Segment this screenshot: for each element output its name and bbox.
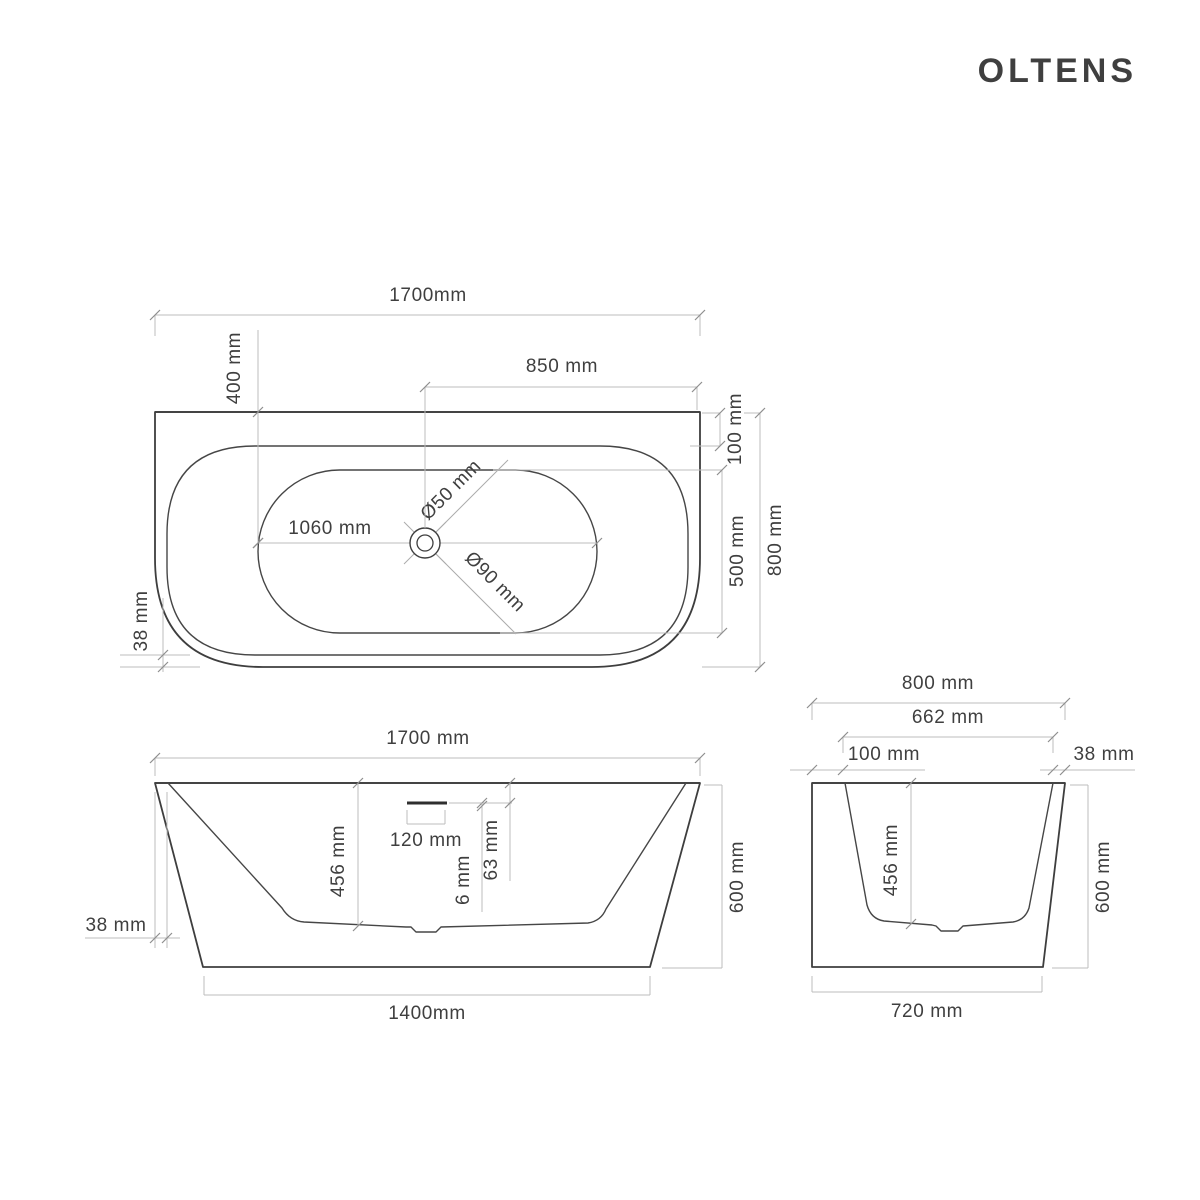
dim-side-inner-depth: 456 mm (881, 778, 916, 929)
dim-front-overall-length: 1700 mm (150, 728, 705, 776)
dim-back-to-drain: 400 mm (224, 330, 263, 548)
dim-label-38-side: 38 mm (1073, 744, 1134, 765)
front-inner-basin (168, 783, 686, 932)
dim-side-back-rim: 100 mm (790, 744, 925, 775)
bathtub-dimension-drawing: OLTENS 1060 mm Ø50 mm Ø90 mm (0, 0, 1200, 1200)
dim-label-400: 400 mm (224, 332, 245, 404)
dim-label-38-front: 38 mm (85, 915, 146, 936)
dim-label-800-side: 800 mm (902, 673, 974, 694)
side-view: 800 mm 662 mm 100 mm 38 mm 456 mm (790, 673, 1135, 1022)
dim-label-1700-front: 1700 mm (386, 728, 469, 749)
dim-label-456-side: 456 mm (881, 824, 902, 896)
side-inner-basin (845, 783, 1053, 931)
dim-label-6: 6 mm (453, 855, 474, 905)
dim-base-width: 720 mm (812, 976, 1042, 1022)
dim-back-rim: 100 mm (690, 393, 746, 465)
dim-label-600-front: 600 mm (727, 841, 748, 913)
dim-label-662: 662 mm (912, 707, 984, 728)
dim-label-1060: 1060 mm (288, 518, 371, 539)
dim-top-overall-length: 1700mm (150, 285, 705, 336)
dim-label-720: 720 mm (891, 1001, 963, 1022)
dim-label-800-top: 800 mm (765, 504, 786, 576)
front-view: 1700 mm 120 mm 63 mm 6 mm (85, 728, 748, 1024)
dim-base-length: 1400mm (204, 976, 650, 1024)
drain-symbol: Ø50 mm Ø90 mm (404, 456, 529, 634)
dim-front-inner-depth: 456 mm (328, 778, 363, 931)
dim-label-120: 120 mm (390, 830, 462, 851)
dim-overflow-width: 120 mm (390, 810, 462, 851)
dim-label-100-top: 100 mm (725, 393, 746, 465)
dim-side-front-rim: 38 mm (1040, 744, 1135, 775)
dim-label-1400: 1400mm (388, 1003, 466, 1024)
dim-bottom-slope: 6 mm (453, 801, 487, 912)
dim-label-500: 500 mm (727, 515, 748, 587)
dim-drain-to-right: 850 mm (420, 356, 702, 528)
dim-label-1700-top: 1700mm (389, 285, 467, 306)
dim-label-456-front: 456 mm (328, 825, 349, 897)
dim-label-600-side: 600 mm (1093, 841, 1114, 913)
dim-label-63: 63 mm (481, 819, 502, 880)
front-outer-outline (155, 783, 700, 967)
dim-label-drain-hole: Ø50 mm (417, 456, 486, 525)
dim-label-100-side: 100 mm (848, 744, 920, 765)
technical-drawing-page: OLTENS 1060 mm Ø50 mm Ø90 mm (0, 0, 1200, 1200)
brand-logo: OLTENS (978, 52, 1137, 90)
dim-front-wall-thickness: 38 mm (85, 792, 180, 948)
dim-label-drain-flange: Ø90 mm (460, 548, 529, 617)
dim-basin-width: 500 mm (493, 465, 748, 638)
dim-label-850: 850 mm (526, 356, 598, 377)
top-view: 1060 mm Ø50 mm Ø90 mm 1700mm 8 (120, 285, 786, 672)
dim-label-38-top: 38 mm (131, 590, 152, 651)
